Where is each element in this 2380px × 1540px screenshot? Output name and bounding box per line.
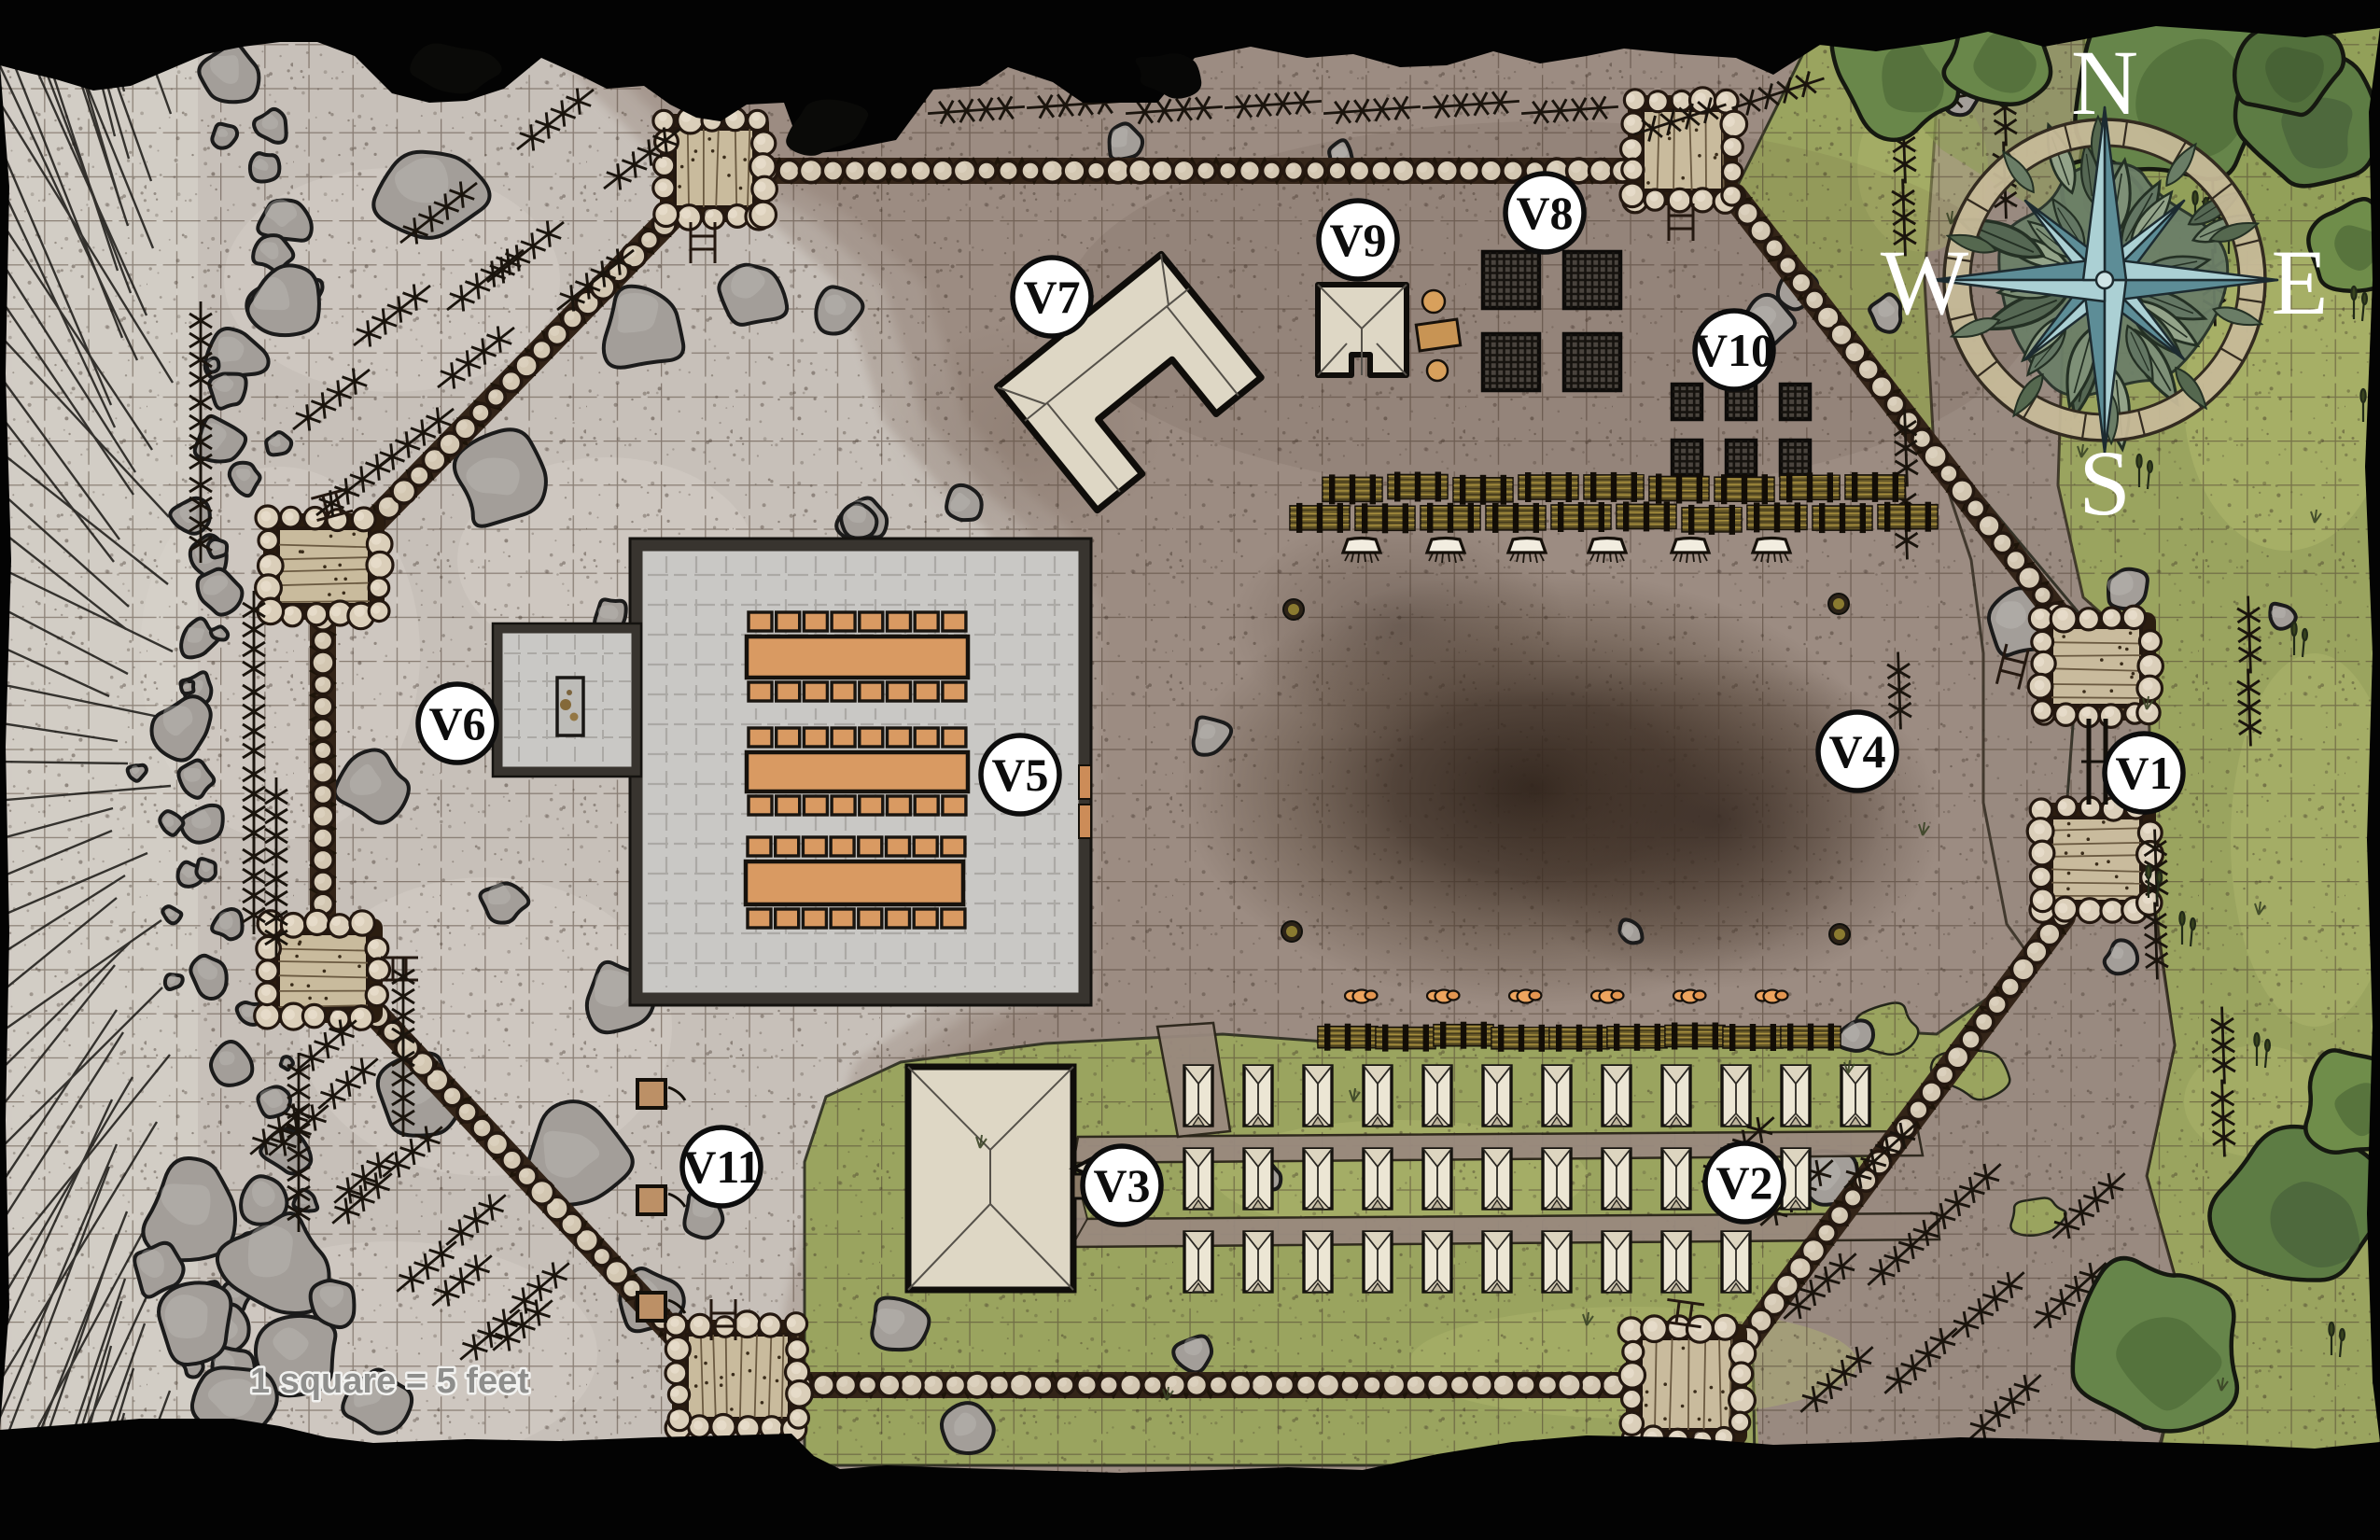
svg-text:V5: V5 (991, 749, 1048, 801)
svg-text:W: W (1881, 231, 1969, 334)
svg-text:S: S (2079, 431, 2131, 535)
svg-text:V1: V1 (2115, 747, 2172, 799)
svg-text:V9: V9 (1329, 214, 1386, 266)
svg-text:V3: V3 (1093, 1159, 1150, 1211)
svg-text:V2: V2 (1715, 1156, 1772, 1209)
svg-text:V8: V8 (1516, 187, 1573, 239)
svg-text:V10: V10 (1694, 324, 1774, 376)
svg-text:N: N (2071, 31, 2138, 134)
svg-text:1 square = 5 feet: 1 square = 5 feet (250, 1362, 529, 1401)
svg-text:V6: V6 (428, 697, 485, 749)
svg-text:E: E (2271, 231, 2328, 334)
svg-text:V4: V4 (1828, 725, 1885, 777)
svg-text:V7: V7 (1023, 271, 1080, 323)
svg-text:V11: V11 (682, 1141, 760, 1193)
